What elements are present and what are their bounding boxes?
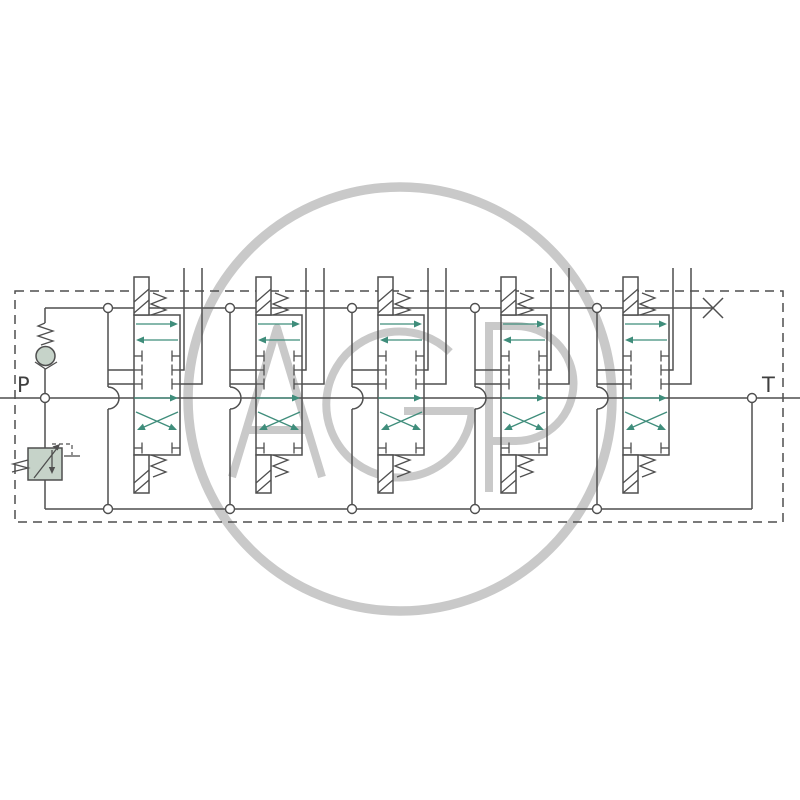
spring-bottom (151, 455, 166, 477)
spring-top (518, 293, 533, 315)
spool-body (623, 315, 669, 455)
valve-block-envelope (15, 291, 783, 522)
t-junction-node (748, 394, 757, 403)
hydraulic-schematic: P T (0, 0, 800, 800)
spring-top (273, 293, 288, 315)
port-label-t: T (761, 373, 775, 397)
relief-valve (12, 402, 80, 509)
valve-section (226, 268, 325, 514)
watermark-letters (232, 322, 573, 492)
check-valve-ball (36, 347, 55, 366)
spring-top (395, 293, 410, 315)
port-label-p: P (17, 373, 30, 397)
inlet-check-valve (35, 308, 57, 394)
agp-watermark (188, 187, 612, 611)
spring-bottom (640, 455, 655, 477)
spool-body (134, 315, 180, 455)
schematic-page: P T (0, 0, 800, 800)
p-junction-node (41, 394, 50, 403)
spring-top (151, 293, 166, 315)
spring-bottom (518, 455, 533, 477)
spring-bottom (273, 455, 288, 477)
spring-top (640, 293, 655, 315)
check-valve-spring (38, 323, 53, 345)
